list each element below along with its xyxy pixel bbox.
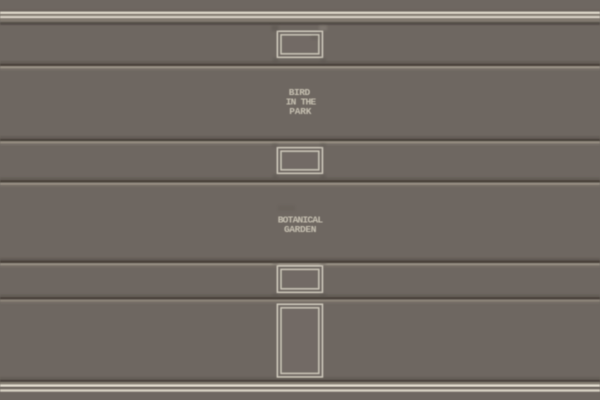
svg-text:GARDEN: GARDEN bbox=[284, 224, 317, 235]
svg-text:PARK: PARK bbox=[289, 106, 312, 117]
